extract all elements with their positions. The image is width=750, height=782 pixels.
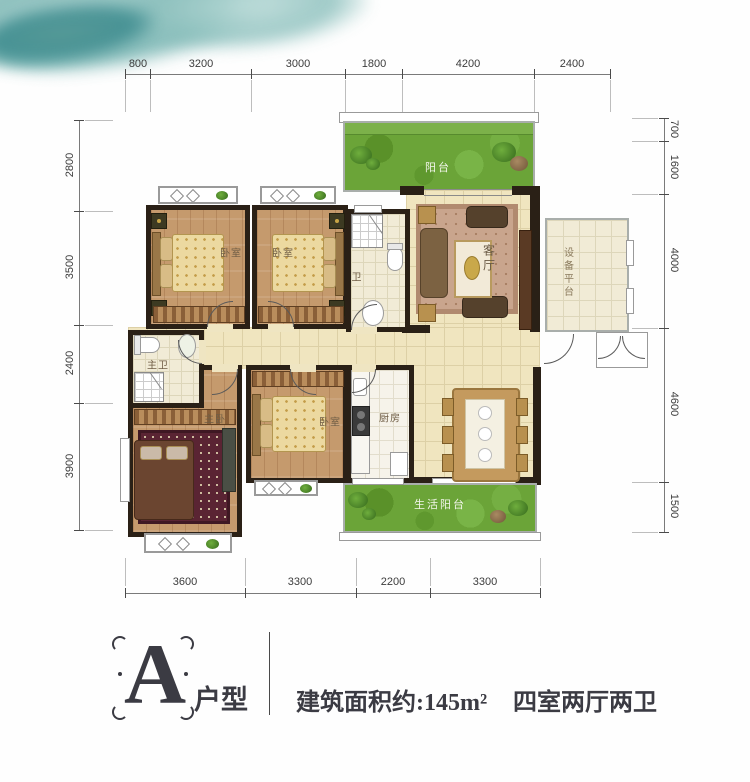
room-label-bathroom: 卫 — [352, 269, 363, 284]
dim-left-0: 2800 — [64, 143, 76, 187]
dim-top-5: 2400 — [550, 58, 594, 70]
flourish-ornament — [112, 636, 128, 652]
area-text: 建筑面积约:145m² — [296, 682, 487, 717]
toilet-tank — [387, 243, 403, 250]
kitchen-window — [352, 478, 404, 485]
room-label-master-bedroom: 主卧 — [204, 411, 226, 426]
dimension-tick — [610, 69, 611, 79]
dim-top-0: 800 — [116, 58, 160, 70]
dimension-tick — [659, 532, 669, 533]
flourish-dot — [118, 672, 122, 676]
table-decor — [464, 256, 480, 280]
dim-bottom-1: 3300 — [278, 576, 322, 588]
pillow — [323, 264, 336, 288]
window — [254, 480, 318, 496]
plate — [478, 448, 492, 462]
dimension-line-top — [125, 74, 610, 75]
plate — [478, 406, 492, 420]
tv-cabinet — [519, 230, 532, 330]
plant — [206, 539, 219, 549]
armchair — [462, 296, 508, 318]
extension-line — [540, 558, 541, 586]
dim-top-2: 3000 — [276, 58, 320, 70]
shower — [351, 214, 383, 248]
dimension-tick — [659, 194, 669, 195]
nightstand — [329, 213, 345, 229]
unit-label: 户型 — [194, 678, 248, 717]
window-diamond — [176, 537, 190, 551]
dining-table — [452, 388, 520, 482]
wall-segment — [533, 367, 541, 485]
bed-duvet — [272, 396, 326, 452]
dimension-tick — [74, 530, 84, 531]
extension-line — [85, 403, 113, 404]
burner — [357, 411, 365, 419]
flourish-ornament — [178, 704, 194, 720]
bay-window — [260, 186, 336, 204]
door-arc — [544, 334, 574, 364]
dining-chair — [442, 454, 454, 472]
dining-chair — [516, 426, 528, 444]
room-label-equipment-platform: 设备平台 — [560, 247, 575, 299]
nightstand — [151, 213, 167, 229]
extension-line — [345, 80, 346, 112]
footer-divider — [269, 632, 270, 715]
extension-line — [85, 120, 113, 121]
dimension-line-bottom — [125, 593, 540, 594]
toilet — [387, 247, 403, 271]
plant — [366, 158, 380, 170]
room-label-bedroom-top-left: 卧室 — [220, 245, 242, 260]
dimension-tick — [74, 120, 84, 121]
bay-window — [158, 186, 238, 204]
bed-duvet — [172, 234, 224, 292]
extension-line — [632, 194, 658, 195]
dimension-tick — [540, 588, 541, 598]
extension-line — [610, 80, 611, 112]
extension-line — [85, 530, 113, 531]
window-diamond — [278, 482, 292, 496]
dim-left-1: 3500 — [64, 245, 76, 289]
dim-top-4: 4200 — [446, 58, 490, 70]
window-diamond — [286, 189, 300, 203]
plant — [362, 508, 376, 520]
extension-line — [245, 558, 246, 586]
flourish-dot — [184, 672, 188, 676]
dimension-tick — [74, 325, 84, 326]
bay-window — [144, 533, 232, 553]
side-table — [418, 304, 436, 322]
service-balcony-rail — [339, 532, 541, 541]
window-diamond — [170, 189, 184, 203]
toilet-tank — [134, 335, 141, 355]
fridge — [390, 452, 408, 476]
unit-letter: A — [124, 626, 186, 722]
dimension-tick — [430, 588, 431, 598]
wall-segment — [400, 186, 424, 195]
extension-line — [125, 80, 126, 112]
pillow — [166, 446, 188, 460]
plant — [508, 500, 528, 516]
dimension-tick — [125, 588, 126, 598]
dimension-tick — [345, 69, 346, 79]
extension-line — [85, 211, 113, 212]
dim-top-1: 3200 — [179, 58, 223, 70]
pillow — [323, 237, 336, 261]
pillow — [140, 446, 162, 460]
dim-left-2: 2400 — [64, 341, 76, 385]
extension-line — [125, 558, 126, 586]
armchair — [466, 206, 508, 228]
tablecloth — [465, 399, 505, 469]
extension-line — [85, 325, 113, 326]
window-diamond — [270, 189, 284, 203]
dimension-tick — [125, 69, 126, 79]
sofa — [420, 228, 448, 298]
window — [120, 438, 130, 502]
extension-line — [632, 482, 658, 483]
dimension-tick — [402, 69, 403, 79]
plant — [314, 191, 326, 200]
stove — [352, 406, 370, 436]
room-label-master-bathroom: 主卫 — [147, 357, 169, 372]
plant — [216, 191, 228, 200]
platform-window — [626, 288, 634, 314]
master-bed — [134, 440, 194, 520]
floorplan-page: 阳台 设备平台 客厅 主卧 — [0, 0, 750, 782]
room-label-bedroom-top-mid: 卧室 — [272, 245, 294, 260]
room-label-bedroom-mid: 卧室 — [319, 414, 341, 429]
rock-decor — [490, 510, 506, 523]
extension-line — [632, 118, 658, 119]
room-label-balcony: 阳台 — [425, 159, 451, 175]
dining-chair — [516, 454, 528, 472]
dim-top-3: 1800 — [352, 58, 396, 70]
burner — [357, 423, 365, 431]
dim-bottom-2: 2200 — [371, 576, 415, 588]
flourish-ornament — [178, 636, 194, 652]
dim-right-3: 4600 — [668, 382, 680, 426]
dim-bottom-0: 3600 — [163, 576, 207, 588]
dimension-tick — [659, 482, 669, 483]
window-diamond — [158, 537, 172, 551]
dimension-tick — [251, 69, 252, 79]
extension-line — [430, 558, 431, 586]
dining-chair — [442, 426, 454, 444]
extension-line — [534, 80, 535, 112]
dimension-tick — [150, 69, 151, 79]
extension-line — [632, 532, 658, 533]
flourish-ornament — [112, 704, 128, 720]
dining-chair — [516, 398, 528, 416]
dim-right-4: 1500 — [668, 484, 680, 528]
dimension-tick — [245, 588, 246, 598]
dim-left-3: 3900 — [64, 444, 76, 488]
dimension-line-right — [664, 118, 665, 532]
dimension-tick — [659, 328, 669, 329]
dimension-tick — [356, 588, 357, 598]
dim-right-1: 1600 — [668, 145, 680, 189]
dim-right-2: 4000 — [668, 238, 680, 282]
extension-line — [251, 80, 252, 112]
bath-window — [354, 205, 382, 213]
room-equipment-platform — [545, 218, 629, 332]
rock-decor — [510, 156, 528, 171]
balcony-sliding-door — [424, 189, 512, 196]
unit-logo: A — [110, 630, 196, 726]
dimension-tick — [74, 211, 84, 212]
bed-headboard — [335, 232, 344, 296]
dim-bottom-3: 3300 — [463, 576, 507, 588]
platform-window — [626, 240, 634, 266]
bench — [222, 428, 236, 492]
dining-chair — [442, 398, 454, 416]
dimension-tick — [534, 69, 535, 79]
room-label-kitchen: 厨房 — [379, 410, 401, 425]
bed-duvet — [272, 234, 324, 292]
extension-line — [356, 558, 357, 586]
side-table — [418, 206, 436, 224]
extension-line — [632, 141, 658, 142]
layout-text: 四室两厅两卫 — [513, 682, 657, 717]
plant — [348, 492, 368, 508]
plant — [300, 484, 312, 493]
plate — [478, 427, 492, 441]
balcony-planter — [345, 123, 533, 135]
extension-line — [150, 80, 151, 112]
extension-line — [632, 328, 658, 329]
room-label-living: 客厅 — [481, 244, 498, 274]
room-label-service-balcony: 生活阳台 — [414, 496, 466, 512]
window-diamond — [262, 482, 276, 496]
dimension-tick — [74, 403, 84, 404]
extension-line — [402, 80, 403, 112]
window-diamond — [186, 189, 200, 203]
